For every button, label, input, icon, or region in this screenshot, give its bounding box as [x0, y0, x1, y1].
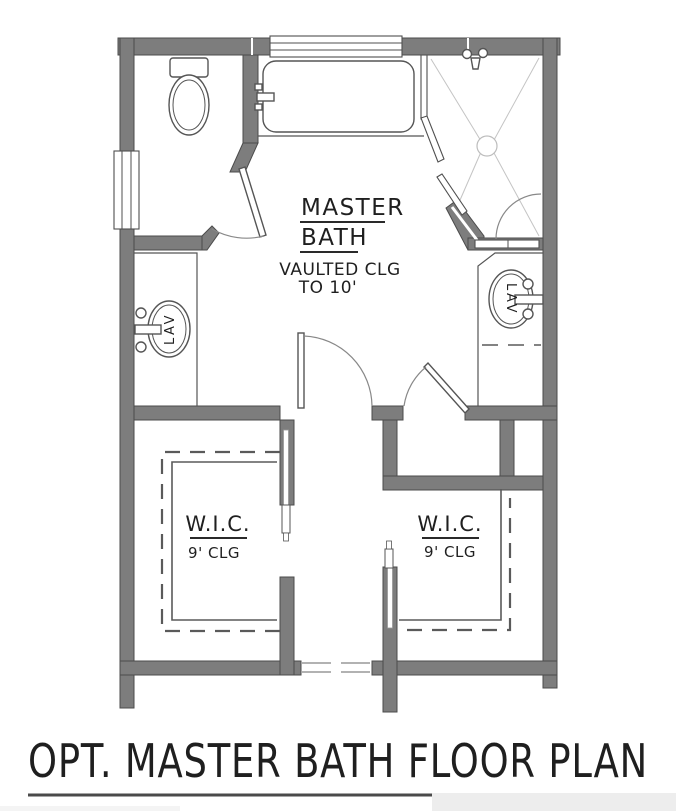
- wall-pocket-stub-bottom: [280, 577, 294, 675]
- scan-artifact: [432, 793, 676, 811]
- pocket-door-icon-left-wic: [282, 430, 290, 541]
- vestibule-door: [404, 363, 469, 413]
- tub-faucet-icon: [257, 93, 274, 101]
- wic-left-ceiling-label: 9' CLG: [188, 544, 240, 562]
- wic-right-label: W.I.C.: [417, 512, 482, 536]
- door-leaf-icon: [424, 363, 469, 413]
- shower-door-swing-icon: [496, 194, 541, 239]
- window-icon-left: [114, 151, 139, 229]
- bath-entry-door: [298, 333, 372, 408]
- wall-left: [120, 38, 134, 708]
- toilet-room-door: [212, 167, 266, 238]
- faucet-icon: [515, 295, 543, 304]
- wall-toilet-bottom: [134, 236, 202, 250]
- wall-bottom-left: [120, 661, 301, 675]
- door-swing-icon: [304, 336, 372, 406]
- wall-middle-center: [372, 406, 403, 420]
- door-swing-icon: [212, 229, 264, 238]
- plan-title: OPT. MASTER BATH FLOOR PLAN: [28, 734, 648, 788]
- shower-curb-tile: [475, 240, 539, 248]
- bottom-opening-threshold: [302, 663, 370, 672]
- master-bath-label-line1: MASTER: [301, 195, 405, 221]
- vanity-left: LAV: [134, 253, 197, 406]
- wall-top-left: [118, 38, 272, 55]
- scan-artifact: [0, 806, 180, 811]
- wall-middle-right: [465, 406, 557, 420]
- master-bath-label-line2: BATH: [301, 225, 368, 251]
- shower-drain-icon: [477, 136, 497, 156]
- vanity-right: LAV: [478, 253, 543, 406]
- lav-label-right: LAV: [503, 283, 518, 315]
- wic-left-label: W.I.C.: [185, 512, 250, 536]
- wall-vestibule-bottom: [383, 476, 543, 490]
- wall-vestibule-divider: [500, 420, 514, 476]
- shower-icon: [421, 49, 541, 249]
- faucet-icon: [135, 325, 161, 334]
- wall-toilet-right: [243, 55, 258, 143]
- floor-plan-canvas: LAV LAV: [0, 0, 676, 811]
- window-icon-top: [270, 36, 402, 57]
- door-swing-icon: [404, 367, 426, 406]
- bathtub-icon: [255, 61, 424, 136]
- plan-title-block: OPT. MASTER BATH FLOOR PLAN: [28, 734, 648, 795]
- door-leaf-icon: [239, 167, 266, 237]
- wic-left-shelving: [162, 452, 284, 631]
- wall-bottom-right: [372, 661, 557, 675]
- wall-toilet-bottom-bevel: [202, 226, 219, 250]
- toilet-icon: [169, 58, 209, 135]
- lav-label-left: LAV: [163, 313, 178, 345]
- shower-glass-panel: [421, 55, 427, 119]
- ceiling-note-line1: VAULTED CLG: [279, 260, 400, 280]
- wall-right: [543, 38, 557, 688]
- door-leaf-icon: [298, 333, 304, 408]
- wall-middle-left: [134, 406, 280, 420]
- ceiling-note-line2: TO 10': [298, 278, 357, 298]
- shower-glass-angle: [421, 116, 444, 162]
- wic-right-ceiling-label: 9' CLG: [424, 543, 476, 561]
- floor-plan-page: LAV LAV: [0, 0, 676, 811]
